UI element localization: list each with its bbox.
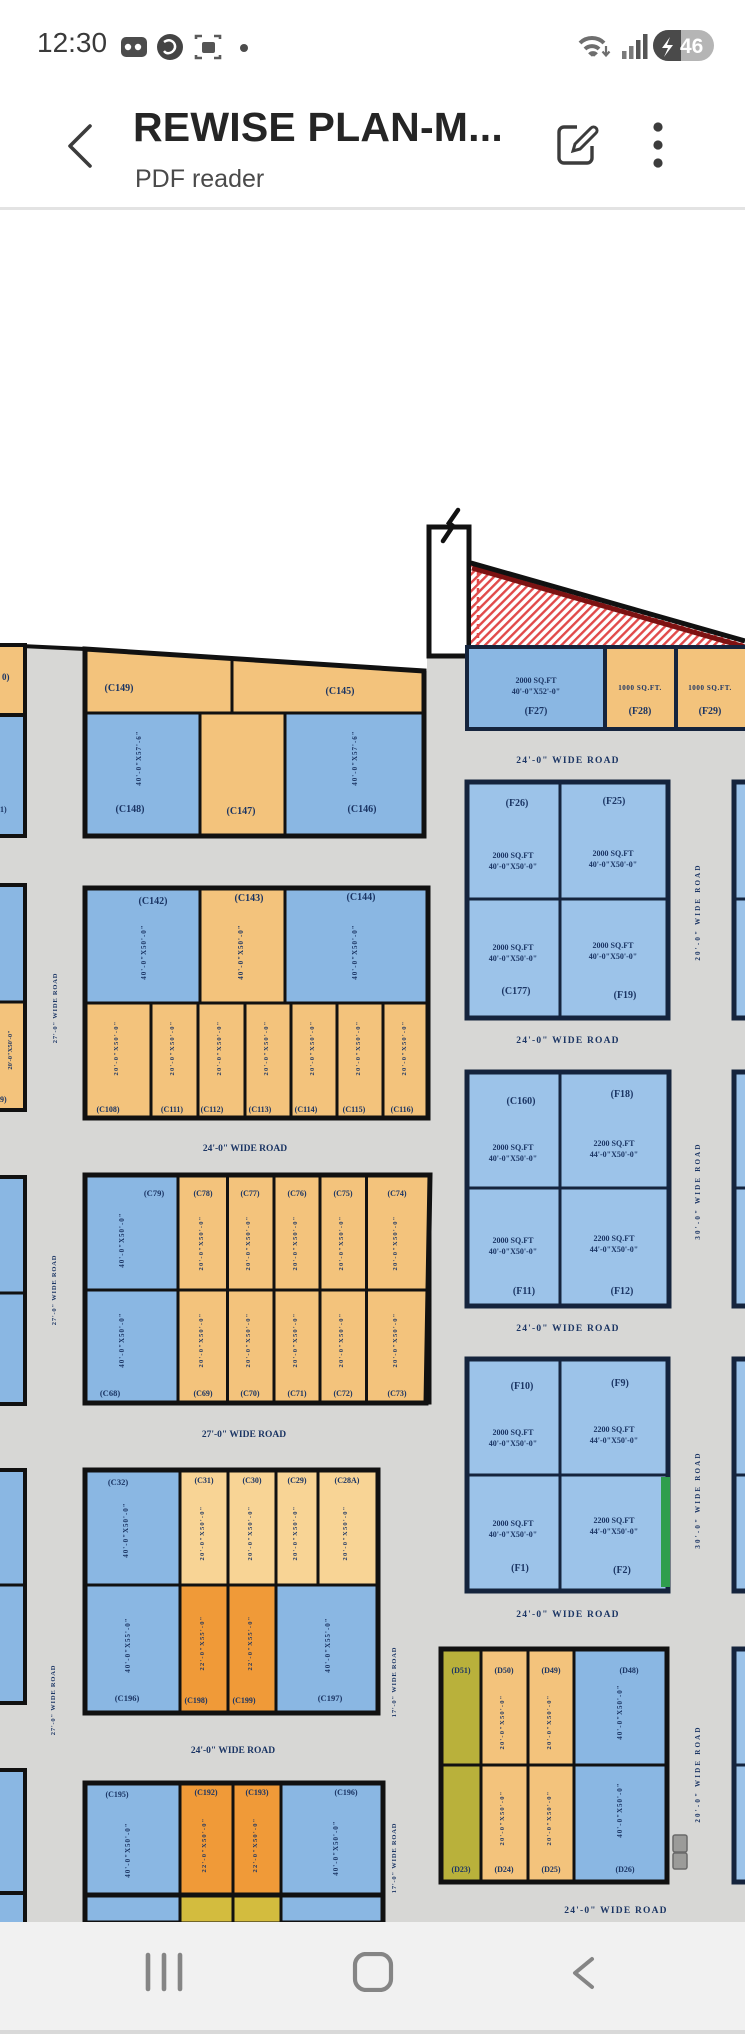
svg-text:2000 SQ.FT: 2000 SQ.FT bbox=[493, 1236, 535, 1245]
svg-text:40'-0"X50'-0": 40'-0"X50'-0" bbox=[489, 1154, 537, 1163]
svg-text:2200 SQ.FT: 2200 SQ.FT bbox=[594, 1425, 636, 1434]
svg-text:2200 SQ.FT: 2200 SQ.FT bbox=[594, 1516, 636, 1525]
svg-text:20'-0"X50'-0": 20'-0"X50'-0" bbox=[216, 1021, 223, 1076]
svg-text:(C196): (C196) bbox=[334, 1788, 357, 1797]
svg-text:20'-0"X50'-0": 20'-0"X50'-0" bbox=[7, 1030, 14, 1069]
svg-text:(C197): (C197) bbox=[318, 1693, 343, 1703]
svg-text:(C74): (C74) bbox=[387, 1189, 406, 1198]
svg-text:20'-0"X50'-0": 20'-0"X50'-0" bbox=[392, 1313, 399, 1368]
svg-text:20'-0" WIDE ROAD: 20'-0" WIDE ROAD bbox=[694, 1725, 702, 1822]
svg-text:44'-0"X50'-0": 44'-0"X50'-0" bbox=[590, 1150, 638, 1159]
svg-text:40'-0"X50'-0": 40'-0"X50'-0" bbox=[489, 862, 537, 871]
svg-text:20'-0"X50'-0": 20'-0"X50'-0" bbox=[401, 1021, 408, 1076]
svg-text:20'-0"X50'-0": 20'-0"X50'-0" bbox=[292, 1216, 299, 1271]
svg-text:(C73): (C73) bbox=[387, 1389, 406, 1398]
svg-text:(F19): (F19) bbox=[614, 990, 637, 1001]
svg-text:44'-0"X50'-0": 44'-0"X50'-0" bbox=[590, 1436, 638, 1445]
svg-text:(F26): (F26) bbox=[506, 798, 529, 809]
svg-text:(C144): (C144) bbox=[347, 892, 376, 903]
svg-text:(C160): (C160) bbox=[507, 1096, 536, 1107]
svg-text:17'-0" WIDE ROAD: 17'-0" WIDE ROAD bbox=[391, 1647, 398, 1717]
svg-text:24'-0" WIDE ROAD: 24'-0" WIDE ROAD bbox=[191, 1746, 275, 1756]
svg-text:20'-0"X50'-0": 20'-0"X50'-0" bbox=[546, 1791, 553, 1846]
svg-text:(C76): (C76) bbox=[287, 1189, 306, 1198]
svg-text:20'-0"X50'-0": 20'-0"X50'-0" bbox=[392, 1216, 399, 1271]
svg-text:(D26): (D26) bbox=[615, 1865, 634, 1874]
svg-text:24'-0" WIDE ROAD: 24'-0" WIDE ROAD bbox=[516, 1324, 619, 1334]
svg-text:20'-0"X50'-0": 20'-0"X50'-0" bbox=[292, 1506, 299, 1561]
svg-text:20'-0"X50'-0": 20'-0"X50'-0" bbox=[113, 1021, 120, 1076]
svg-text:27'-0" WIDE ROAD: 27'-0" WIDE ROAD bbox=[202, 1430, 286, 1440]
svg-text:(C111): (C111) bbox=[161, 1105, 184, 1114]
svg-text:20'-0"X50'-0": 20'-0"X50'-0" bbox=[245, 1216, 252, 1271]
svg-text:(C115): (C115) bbox=[343, 1105, 366, 1114]
svg-text:40'-0"X50'-0": 40'-0"X50'-0" bbox=[118, 1212, 126, 1267]
svg-text:20'-0"X50'-0": 20'-0"X50'-0" bbox=[169, 1021, 176, 1076]
svg-text:(D23): (D23) bbox=[451, 1865, 470, 1874]
svg-text:40'-0"X52'-0": 40'-0"X52'-0" bbox=[512, 687, 560, 696]
svg-text:(C69): (C69) bbox=[193, 1389, 212, 1398]
svg-text:20'-0"X50'-0": 20'-0"X50'-0" bbox=[263, 1021, 270, 1076]
svg-text:(C146): (C146) bbox=[348, 804, 377, 815]
svg-text:20'-0"X50'-0": 20'-0"X50'-0" bbox=[338, 1216, 345, 1271]
svg-text:40'-0"X55'-0": 40'-0"X55'-0" bbox=[124, 1617, 132, 1672]
svg-text:22'-0"X55'-0": 22'-0"X55'-0" bbox=[199, 1616, 206, 1671]
svg-text:(C28A): (C28A) bbox=[335, 1476, 360, 1485]
svg-text:(F12): (F12) bbox=[611, 1286, 634, 1297]
svg-text:40'-0"X50'-0": 40'-0"X50'-0" bbox=[237, 924, 245, 979]
svg-text:2200 SQ.FT: 2200 SQ.FT bbox=[594, 1234, 636, 1243]
svg-text:(D50): (D50) bbox=[494, 1666, 513, 1675]
svg-text:(C114): (C114) bbox=[295, 1105, 318, 1114]
svg-text:40'-0"X50'-0": 40'-0"X50'-0" bbox=[589, 860, 637, 869]
svg-text:20'-0"X50'-0": 20'-0"X50'-0" bbox=[198, 1216, 205, 1271]
svg-text:(F28): (F28) bbox=[629, 706, 652, 717]
svg-text:40'-0"X50'-0": 40'-0"X50'-0" bbox=[118, 1312, 126, 1367]
svg-text:20'-0"X50'-0": 20'-0"X50'-0" bbox=[342, 1506, 349, 1561]
svg-text:(C30): (C30) bbox=[242, 1476, 261, 1485]
svg-text:1): 1) bbox=[0, 805, 7, 814]
svg-text:(C195): (C195) bbox=[105, 1790, 128, 1799]
svg-text:44'-0"X50'-0": 44'-0"X50'-0" bbox=[590, 1245, 638, 1254]
svg-text:20'-0"X50'-0": 20'-0"X50'-0" bbox=[499, 1791, 506, 1846]
svg-text:(C70): (C70) bbox=[240, 1389, 259, 1398]
svg-text:(C78): (C78) bbox=[193, 1189, 212, 1198]
svg-text:(F29): (F29) bbox=[699, 706, 722, 717]
svg-text:(D48): (D48) bbox=[619, 1666, 638, 1675]
svg-text:2000 SQ.FT: 2000 SQ.FT bbox=[593, 849, 635, 858]
svg-text:(C116): (C116) bbox=[391, 1105, 414, 1114]
svg-text:20'-0"X50'-0": 20'-0"X50'-0" bbox=[198, 1313, 205, 1368]
svg-text:40'-0"X50'-0": 40'-0"X50'-0" bbox=[332, 1820, 340, 1875]
svg-text:(D51): (D51) bbox=[451, 1666, 470, 1675]
svg-text:(C72): (C72) bbox=[333, 1389, 352, 1398]
svg-text:24'-0" WIDE ROAD: 24'-0" WIDE ROAD bbox=[564, 1906, 667, 1916]
svg-text:20'-0"X50'-0": 20'-0"X50'-0" bbox=[292, 1313, 299, 1368]
svg-text:20'-0"X50'-0": 20'-0"X50'-0" bbox=[338, 1313, 345, 1368]
svg-text:24'-0" WIDE ROAD: 24'-0" WIDE ROAD bbox=[203, 1144, 287, 1154]
svg-text:17'-0" WIDE ROAD: 17'-0" WIDE ROAD bbox=[391, 1823, 398, 1893]
svg-text:30'-0" WIDE ROAD: 30'-0" WIDE ROAD bbox=[694, 1142, 702, 1239]
svg-text:40'-0"X50'-0": 40'-0"X50'-0" bbox=[616, 1782, 624, 1837]
svg-text:40'-0"X50'-0": 40'-0"X50'-0" bbox=[489, 1247, 537, 1256]
svg-text:(F9): (F9) bbox=[611, 1378, 629, 1389]
svg-text:20'-0"X50'-0": 20'-0"X50'-0" bbox=[355, 1021, 362, 1076]
svg-text:40'-0"X50'-0": 40'-0"X50'-0" bbox=[616, 1684, 624, 1739]
svg-text:(F2): (F2) bbox=[613, 1565, 631, 1576]
svg-text:(C199): (C199) bbox=[232, 1696, 255, 1705]
svg-text:(C112): (C112) bbox=[201, 1105, 224, 1114]
svg-text:(F11): (F11) bbox=[513, 1286, 535, 1297]
svg-text:40'-0"X55'-0": 40'-0"X55'-0" bbox=[324, 1617, 332, 1672]
svg-text:0): 0) bbox=[2, 672, 10, 682]
svg-text:(C142): (C142) bbox=[139, 896, 168, 907]
svg-text:40'-0"X50'-0": 40'-0"X50'-0" bbox=[140, 924, 148, 979]
svg-text:(C77): (C77) bbox=[240, 1189, 259, 1198]
svg-text:9): 9) bbox=[0, 1095, 7, 1104]
svg-text:(F18): (F18) bbox=[611, 1089, 634, 1100]
svg-text:1000 SQ.FT.: 1000 SQ.FT. bbox=[618, 684, 662, 692]
svg-text:1000 SQ.FT.: 1000 SQ.FT. bbox=[688, 684, 732, 692]
svg-text:22'-0"X55'-0": 22'-0"X55'-0" bbox=[247, 1616, 254, 1671]
svg-text:(C147): (C147) bbox=[227, 806, 256, 817]
svg-text:(D49): (D49) bbox=[541, 1666, 560, 1675]
svg-text:2000 SQ.FT: 2000 SQ.FT bbox=[493, 1519, 535, 1528]
svg-text:2200 SQ.FT: 2200 SQ.FT bbox=[594, 1139, 636, 1148]
svg-text:(C198): (C198) bbox=[184, 1696, 207, 1705]
svg-text:40'-0"X50'-0": 40'-0"X50'-0" bbox=[589, 952, 637, 961]
svg-text:(C32): (C32) bbox=[108, 1477, 128, 1487]
svg-text:2000 SQ.FT: 2000 SQ.FT bbox=[493, 943, 535, 952]
svg-text:30'-0" WIDE ROAD: 30'-0" WIDE ROAD bbox=[694, 1451, 702, 1548]
svg-text:(C145): (C145) bbox=[326, 686, 355, 697]
svg-text:2000 SQ.FT: 2000 SQ.FT bbox=[593, 941, 635, 950]
svg-text:(C196): (C196) bbox=[115, 1693, 140, 1703]
svg-text:(D25): (D25) bbox=[541, 1865, 560, 1874]
svg-text:44'-0"X50'-0": 44'-0"X50'-0" bbox=[590, 1527, 638, 1536]
svg-text:(C29): (C29) bbox=[287, 1476, 306, 1485]
svg-text:27'-0" WIDE ROAD: 27'-0" WIDE ROAD bbox=[50, 1665, 57, 1735]
svg-text:40'-0"X50'-0": 40'-0"X50'-0" bbox=[489, 1439, 537, 1448]
svg-text:(C113): (C113) bbox=[249, 1105, 272, 1114]
svg-text:22'-0"X50'-0": 22'-0"X50'-0" bbox=[201, 1818, 208, 1873]
svg-text:(C192): (C192) bbox=[194, 1788, 217, 1797]
svg-text:(C143): (C143) bbox=[235, 893, 264, 904]
svg-text:(F27): (F27) bbox=[525, 706, 548, 717]
svg-text:20'-0"X50'-0": 20'-0"X50'-0" bbox=[245, 1313, 252, 1368]
svg-text:(C79): (C79) bbox=[144, 1188, 164, 1198]
svg-text:(F1): (F1) bbox=[511, 1563, 529, 1574]
svg-text:2000 SQ.FT: 2000 SQ.FT bbox=[493, 1143, 535, 1152]
svg-text:(C71): (C71) bbox=[287, 1389, 306, 1398]
svg-text:24'-0" WIDE ROAD: 24'-0" WIDE ROAD bbox=[516, 1610, 619, 1620]
svg-text:(D24): (D24) bbox=[494, 1865, 513, 1874]
svg-text:40'-0"X50'-0": 40'-0"X50'-0" bbox=[489, 954, 537, 963]
svg-text:(C31): (C31) bbox=[194, 1476, 213, 1485]
svg-text:(C108): (C108) bbox=[96, 1105, 119, 1114]
svg-text:2000 SQ.FT: 2000 SQ.FT bbox=[493, 851, 535, 860]
svg-text:(C75): (C75) bbox=[333, 1189, 352, 1198]
svg-text:40'-0"X57'-6": 40'-0"X57'-6" bbox=[351, 730, 359, 785]
svg-text:24'-0" WIDE ROAD: 24'-0" WIDE ROAD bbox=[516, 756, 619, 766]
svg-text:20'-0"X50'-0": 20'-0"X50'-0" bbox=[199, 1506, 206, 1561]
svg-text:(F10): (F10) bbox=[511, 1381, 534, 1392]
svg-text:40'-0"X50'-0": 40'-0"X50'-0" bbox=[124, 1822, 132, 1877]
svg-text:20'-0"X50'-0": 20'-0"X50'-0" bbox=[546, 1695, 553, 1750]
svg-text:(C149): (C149) bbox=[105, 683, 134, 694]
svg-text:27'-0" WIDE ROAD: 27'-0" WIDE ROAD bbox=[51, 1255, 58, 1325]
svg-text:22'-0"X50'-0": 22'-0"X50'-0" bbox=[252, 1818, 259, 1873]
svg-text:(F25): (F25) bbox=[603, 796, 626, 807]
svg-text:40'-0"X50'-0": 40'-0"X50'-0" bbox=[122, 1502, 130, 1557]
svg-text:27'-0" WIDE ROAD: 27'-0" WIDE ROAD bbox=[52, 973, 59, 1043]
svg-text:20'-0" WIDE ROAD: 20'-0" WIDE ROAD bbox=[694, 863, 702, 960]
svg-text:40'-0"X57'-6": 40'-0"X57'-6" bbox=[135, 730, 143, 785]
svg-text:(C193): (C193) bbox=[245, 1788, 268, 1797]
svg-text:24'-0" WIDE ROAD: 24'-0" WIDE ROAD bbox=[516, 1036, 619, 1046]
svg-text:2000 SQ.FT: 2000 SQ.FT bbox=[493, 1428, 535, 1437]
svg-text:2000 SQ.FT: 2000 SQ.FT bbox=[516, 676, 558, 685]
svg-text:20'-0"X50'-0": 20'-0"X50'-0" bbox=[309, 1021, 316, 1076]
svg-text:20'-0"X50'-0": 20'-0"X50'-0" bbox=[499, 1695, 506, 1750]
svg-text:(C148): (C148) bbox=[116, 804, 145, 815]
svg-text:(C177): (C177) bbox=[502, 986, 531, 997]
svg-text:40'-0"X50'-0": 40'-0"X50'-0" bbox=[351, 924, 359, 979]
svg-text:20'-0"X50'-0": 20'-0"X50'-0" bbox=[247, 1506, 254, 1561]
svg-text:(C68): (C68) bbox=[100, 1388, 120, 1398]
svg-text:40'-0"X50'-0": 40'-0"X50'-0" bbox=[489, 1530, 537, 1539]
